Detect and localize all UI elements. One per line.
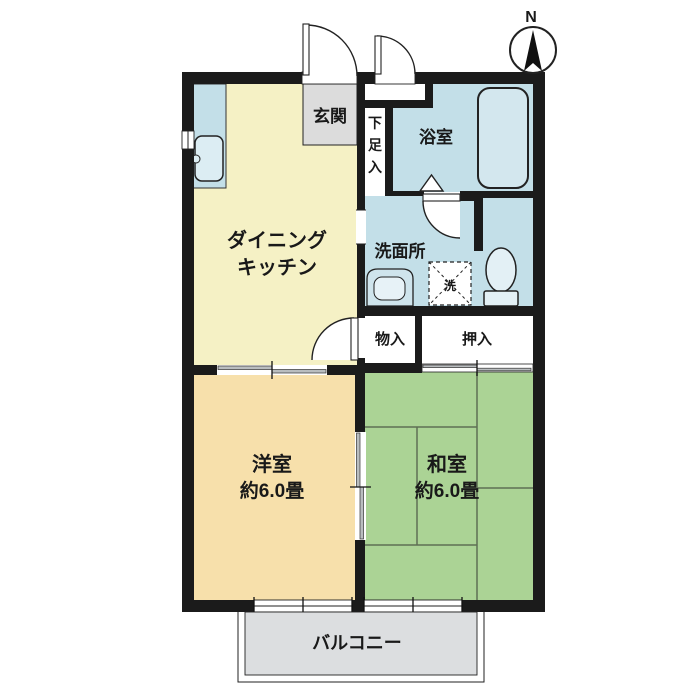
svg-text:足: 足 xyxy=(368,137,383,153)
floorplan-canvas: ダイニング キッチン 洋室 約6.0畳 和室 約6.0畳 玄関 浴室 洗面所 下… xyxy=(0,0,700,700)
wall-top-left xyxy=(182,72,302,84)
wall-washroom-left-a xyxy=(357,196,365,210)
wall-shoe-cabinet xyxy=(365,100,433,108)
wall-rooms-divider-bottom xyxy=(355,540,365,600)
label-western-room: 洋室 xyxy=(252,452,292,476)
entrance-door-swing xyxy=(306,25,357,76)
label-washroom: 洗面所 xyxy=(375,241,426,261)
entrance-door-leaf xyxy=(303,24,309,75)
wall-left-upper xyxy=(182,72,194,131)
wall-bath-bottom-a xyxy=(393,191,424,196)
label-closet: 押入 xyxy=(462,330,492,348)
washroom-opening xyxy=(356,210,366,244)
wall-left-lower xyxy=(182,149,194,612)
wall-top-right xyxy=(415,72,545,84)
wall-dk-bottom-left xyxy=(194,365,217,375)
label-shoe-cabinet: 下 足 入 xyxy=(368,115,383,175)
wall-storage-closet-divider xyxy=(415,316,422,363)
label-dk-line1: ダイニング xyxy=(227,228,327,252)
wall-top-mid xyxy=(357,72,375,84)
wall-bath-bottom-b xyxy=(460,191,474,201)
service-door-leaf xyxy=(375,36,381,74)
compass-n-label: N xyxy=(525,9,537,26)
kitchen-window xyxy=(182,131,194,149)
storage-door-leaf xyxy=(351,318,358,360)
wall-bottom-right xyxy=(462,600,545,612)
label-storage: 物入 xyxy=(375,330,405,348)
label-japanese-size: 約6.0畳 xyxy=(415,479,479,502)
label-entrance: 玄関 xyxy=(313,106,347,126)
wall-hall-bath xyxy=(385,108,393,196)
shoe-cabinet-box xyxy=(365,84,425,100)
wall-washroom-bottom xyxy=(357,306,533,316)
svg-text:下: 下 xyxy=(368,115,382,131)
compass: N xyxy=(510,9,556,73)
toilet xyxy=(484,248,518,306)
vanity-sink-bowl xyxy=(374,277,405,300)
label-dk-line2: キッチン xyxy=(237,257,317,279)
svg-text:入: 入 xyxy=(368,159,382,175)
label-laundry: 洗 xyxy=(444,278,456,293)
label-western-size: 約6.0畳 xyxy=(240,479,304,502)
wall-hall-left xyxy=(357,84,365,196)
label-bathroom: 浴室 xyxy=(419,127,453,147)
wall-bottom-left xyxy=(182,600,254,612)
label-balcony: バルコニー xyxy=(312,633,402,653)
wall-toilet-partition xyxy=(474,191,483,251)
bathtub xyxy=(478,88,528,188)
wall-storage-bottom xyxy=(357,363,422,373)
wall-bottom-mid xyxy=(352,600,364,612)
wall-right xyxy=(533,72,545,612)
washroom-door-leaf xyxy=(423,194,460,201)
wall-rooms-divider-top xyxy=(355,365,365,432)
wall-shoe-cabinet-end xyxy=(425,84,433,108)
wall-dk-bottom-right xyxy=(327,365,357,375)
label-japanese-room: 和室 xyxy=(427,452,467,476)
